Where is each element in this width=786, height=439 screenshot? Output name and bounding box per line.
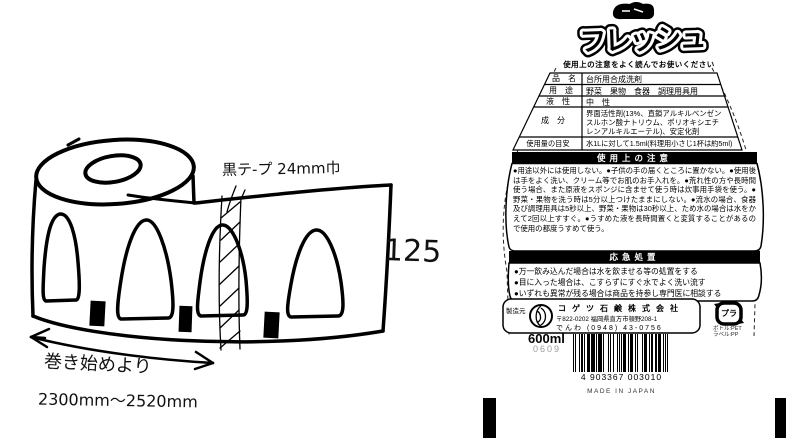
- caution-header: 使用上の注意をよく読んでお使いください: [560, 59, 718, 70]
- count-label: 125: [383, 233, 441, 270]
- spec-row-label: 成 分: [526, 117, 580, 125]
- spec-row-value: 中 性: [586, 98, 722, 108]
- first-aid-title: 応急処置: [509, 252, 760, 264]
- printed-bottle-shapes: [43, 214, 343, 319]
- spec-row-value: 台所用合成洗剤: [586, 75, 714, 85]
- scanned-spec-sheet: 黒テ-プ 24mm巾 125 巻き始めより 2300mm〜2520mm フレッシ…: [0, 0, 786, 439]
- spec-row-value: 野菜 果物 食器 調理用具用: [586, 87, 718, 97]
- wind-start-note-line2: 2300mm〜2520mm: [38, 386, 198, 413]
- registration-mark: [483, 398, 496, 438]
- first-aid-item: ●目に入った場合は、こすらずにすぐ水でよく洗い流す: [514, 277, 756, 288]
- film-bottom-edge: [33, 316, 383, 342]
- brand-logo: フレッシュ フレッシュ フレッシュ: [579, 23, 705, 58]
- product-label: フレッシュ フレッシュ フレッシュ: [480, 0, 786, 439]
- lot-code: 0609: [533, 344, 561, 354]
- spec-row-value: 水1Lに対して1.5ml(料理用小さじ1杯は約5ml): [586, 140, 736, 149]
- spec-row-label: 用 途: [542, 87, 580, 95]
- spec-row-label: 液 性: [536, 98, 580, 106]
- manufacturer-role: 製造元: [506, 305, 528, 315]
- pla-mark-symbol: プラ: [717, 308, 741, 319]
- manufacturer-name: コゲツ石鹸株式会社: [558, 303, 698, 314]
- precautions-body: ●用途以外には使用しない。●子供の手の届くところに置かない。●使用後は手をよく洗…: [513, 166, 756, 249]
- barcode: 4 903367 003010: [573, 334, 670, 387]
- manufacturer-phone: でんわ (0948) 43-0756: [556, 323, 698, 333]
- svg-text:フレッシュ: フレッシュ: [579, 23, 705, 58]
- spec-row-label: 品 名: [548, 75, 580, 83]
- first-aid-item: ●万一飲み込んだ場合は水を飲ませる等の処置をする: [514, 266, 756, 277]
- spec-row-value: 界面活性剤(13%、直鎖アルキルベンゼンスルホン酸ナトリウム、ポリオキシエチレン…: [586, 109, 726, 136]
- spec-row-label: 使用量の目安: [516, 140, 580, 148]
- pla-material-label: ラベル:PP: [713, 332, 747, 338]
- barcode-digits: 4 903367 003010: [573, 372, 670, 382]
- tape-width-note: 黒テ-プ 24mm巾: [222, 157, 341, 180]
- logo-ribbon-icon: [614, 3, 653, 18]
- registration-mark: [775, 398, 786, 438]
- first-aid-item: ●いずれも異常が残る場合は商品を持参し専門医に相談する: [514, 288, 756, 299]
- wind-start-note-line1: 巻き始めより: [43, 347, 152, 379]
- film-top-edge: [195, 185, 391, 203]
- roll-left-edge: [32, 180, 36, 316]
- precautions-title: 使用上の注意: [512, 153, 757, 164]
- made-in-japan-text: MADE IN JAPAN: [573, 388, 670, 395]
